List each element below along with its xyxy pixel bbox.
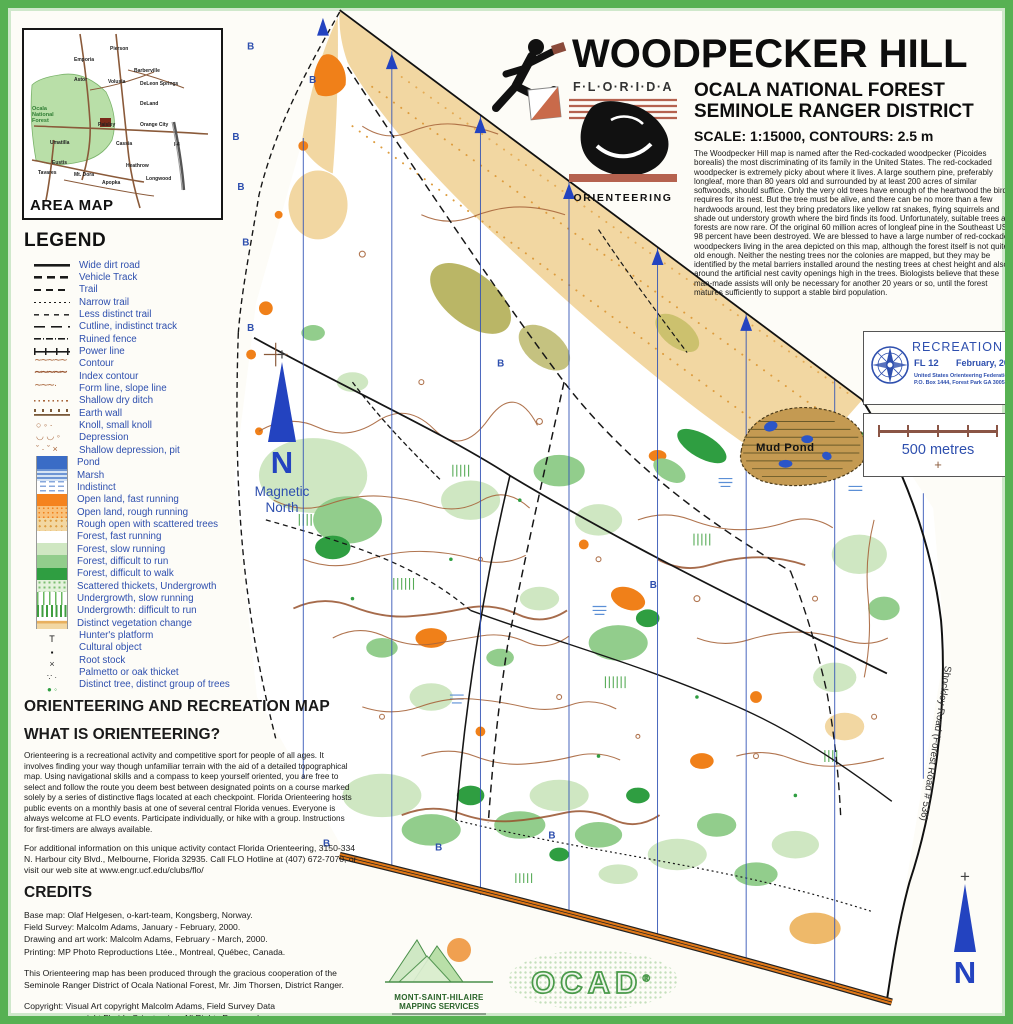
cross-mark-icon: + bbox=[936, 870, 994, 884]
msh-contact-line bbox=[392, 1013, 486, 1015]
registered-mark: ® bbox=[642, 974, 654, 985]
w-forestdiffrun-symbol bbox=[36, 555, 68, 567]
area-map-town-label: Eustis bbox=[52, 160, 67, 166]
what-is-orienteering-body: Orienteering is a recreational activity … bbox=[24, 751, 354, 835]
area-map-town-label: Emporia bbox=[74, 57, 94, 63]
legend-label: Less distinct trail bbox=[79, 309, 151, 320]
w-vegchange-symbol bbox=[36, 617, 68, 629]
cross-mark-icon: + bbox=[242, 348, 322, 362]
compass-rose-icon bbox=[869, 344, 911, 386]
subtitle-forest: OCALA NATIONAL FOREST bbox=[694, 80, 974, 101]
msh-name-line1: MONT-SAINT-HILAIRE bbox=[374, 993, 504, 1002]
info-text-column: ORIENTEERING AND RECREATION MAP WHAT IS … bbox=[24, 698, 364, 1024]
woodpecker-description: The Woodpecker Hill map is named after t… bbox=[694, 149, 1013, 297]
legend-item: Depression bbox=[24, 432, 249, 444]
ocad-wordmark: OCAD® bbox=[531, 965, 655, 1000]
p-root-symbol bbox=[34, 654, 70, 666]
legend-label: Distinct tree, distinct group of trees bbox=[79, 679, 230, 690]
w-forestslow-symbol bbox=[36, 543, 68, 555]
legend-label: Undergrowth: difficult to run bbox=[77, 605, 197, 616]
legend-item: Knoll, small knoll bbox=[24, 419, 249, 431]
area-map-label: AREA MAP bbox=[30, 197, 113, 214]
legend-label: Undergrowth, slow running bbox=[77, 593, 194, 604]
area-map-town-label: I-4 bbox=[174, 142, 180, 148]
florida-logo-text: F·L·O·R·I·D·A bbox=[564, 80, 682, 94]
subtitle-district: SEMINOLE RANGER DISTRICT bbox=[694, 101, 974, 122]
legend-label: Shallow depression, pit bbox=[79, 445, 180, 456]
area-map-town-label: Apopka bbox=[102, 180, 120, 186]
legend-item: Indistinct bbox=[24, 481, 249, 493]
registration-cross-icon: + bbox=[864, 458, 1012, 471]
legend-item: Root stock bbox=[24, 654, 249, 666]
southeast-north-arrow: + N bbox=[936, 870, 994, 988]
credit-printing: Printing: MP Photo Reproductions Ltée., … bbox=[24, 946, 364, 958]
legend-label: Forest, fast running bbox=[77, 531, 161, 542]
florida-logo-orienteering-text: ORIENTEERING bbox=[564, 192, 682, 204]
w-forestdiffwalk-symbol bbox=[36, 568, 68, 580]
scale-bar-box: 500 metres + bbox=[863, 413, 1013, 477]
magnetic-north-arrow: + N Magnetic North bbox=[242, 348, 322, 517]
area-map-town-label: Orange City bbox=[140, 122, 168, 128]
legend-label: Vehicle Track bbox=[79, 272, 137, 283]
legend-label: Forest, slow running bbox=[77, 544, 165, 555]
p-hunter-symbol bbox=[34, 629, 70, 641]
credit-survey: Field Survey: Malcolm Adams, January - F… bbox=[24, 921, 364, 933]
area-map-town-label: Volusia bbox=[108, 79, 125, 85]
legend-label: Pond bbox=[77, 457, 100, 468]
mountains-sun-icon bbox=[379, 930, 499, 988]
ocad-logo: OCAD® bbox=[508, 950, 678, 1010]
legend-label: Shallow dry ditch bbox=[79, 395, 153, 406]
boundary-marker-b: B bbox=[232, 132, 239, 143]
legend-label: Hunter's platform bbox=[79, 630, 153, 641]
magnetic-north-label: Magnetic North bbox=[242, 484, 322, 518]
s-trail-symbol bbox=[34, 284, 70, 296]
map-subtitle: OCALA NATIONAL FOREST SEMINOLE RANGER DI… bbox=[694, 80, 974, 123]
legend-label: Forest, difficult to run bbox=[77, 556, 168, 567]
area-map-inset: PiersonEmporiaBarbervilleDeLeon SpringsA… bbox=[22, 28, 223, 220]
legend-item: Marsh bbox=[24, 469, 249, 481]
legend-label: Cutline, indistinct track bbox=[79, 321, 177, 332]
area-map-town-label: Umatilla bbox=[50, 140, 69, 146]
w-underslow-symbol bbox=[36, 592, 68, 604]
legend-item: Forest, difficult to walk bbox=[24, 568, 249, 580]
legend-label: Form line, slope line bbox=[79, 383, 167, 394]
legend-label: Index contour bbox=[79, 371, 138, 382]
manatee-artwork bbox=[567, 94, 679, 186]
legend-label: Contour bbox=[79, 358, 114, 369]
boundary-marker-b: B bbox=[247, 41, 254, 52]
legend-item: Less distinct trail bbox=[24, 308, 249, 320]
map-title: WOODPECKER HILL bbox=[572, 32, 968, 77]
area-map-town-label: Paisley bbox=[98, 122, 115, 128]
recreation-map-badge: RECREATION MAP FL 12 February, 2000 Unit… bbox=[863, 331, 1013, 405]
scale-bar-label: 500 metres bbox=[864, 442, 1012, 458]
north-letter: N bbox=[242, 447, 322, 478]
legend-panel: LEGEND Wide dirt roadVehicle TrackTrailN… bbox=[24, 230, 249, 691]
legend-item: Ruined fence bbox=[24, 333, 249, 345]
credit-drawing: Drawing and art work: Malcolm Adams, Feb… bbox=[24, 933, 364, 945]
legend-item: Cultural object bbox=[24, 642, 249, 654]
area-map-town-label: Astor bbox=[74, 77, 87, 83]
legend-item: Hunter's platform bbox=[24, 629, 249, 641]
boundary-marker-b: B bbox=[309, 75, 316, 86]
legend-item: Forest, slow running bbox=[24, 543, 249, 555]
legend-item: Rough open with scattered trees bbox=[24, 518, 249, 530]
north-arrow-icon bbox=[260, 362, 304, 444]
legend-item: Palmetto or oak thicket bbox=[24, 666, 249, 678]
legend-item: Cutline, indistinct track bbox=[24, 321, 249, 333]
cooperation-note: This Orienteering map has been produced … bbox=[24, 968, 358, 990]
area-map-town-label: Ocala National Forest bbox=[32, 106, 66, 124]
north-letter: N bbox=[936, 957, 994, 988]
usof-address: United States Orienteering Federation P.… bbox=[914, 373, 1011, 387]
area-map-town-label: Heathrow bbox=[126, 163, 149, 169]
area-map-town-label: Pierson bbox=[110, 46, 128, 52]
legend-label: Trail bbox=[79, 284, 98, 295]
scale-contours-line: SCALE: 1:15000, CONTOURS: 2.5 m bbox=[694, 128, 933, 144]
w-forestfast-symbol bbox=[36, 531, 68, 543]
area-map-towns: PiersonEmporiaBarbervilleDeLeon SpringsA… bbox=[24, 30, 221, 218]
s-vtrack-symbol bbox=[34, 272, 70, 284]
legend-item: Trail bbox=[24, 284, 249, 296]
legend-label: Wide dirt road bbox=[79, 260, 140, 271]
magnetic-label-line1: Magnetic bbox=[242, 484, 322, 501]
w-indistinct-symbol bbox=[36, 481, 68, 493]
legend-label: Distinct vegetation change bbox=[77, 618, 192, 629]
mud-pond-label: Mud Pond bbox=[756, 442, 815, 454]
legend-item: Open land, fast running bbox=[24, 494, 249, 506]
area-map-town-label: Longwood bbox=[146, 176, 171, 182]
s-fence-symbol bbox=[34, 333, 70, 345]
legend-label: Power line bbox=[79, 346, 125, 357]
legend-item: Distinct vegetation change bbox=[24, 617, 249, 629]
legend-item: Undergrowth, slow running bbox=[24, 592, 249, 604]
usof-line1: United States Orienteering Federation bbox=[914, 373, 1011, 380]
s-ditch-symbol bbox=[34, 395, 70, 407]
map-code: FL 12 bbox=[914, 358, 939, 369]
w-openfast-symbol bbox=[36, 494, 68, 506]
copyright-note: Copyright: Visual Art copyright Malcolm … bbox=[24, 1000, 364, 1024]
legend-item: Wide dirt road bbox=[24, 259, 249, 271]
legend-label: Knoll, small knoll bbox=[79, 420, 152, 431]
w-thickets-symbol bbox=[36, 580, 68, 592]
copyright-line2: copyright Florida Orienteering. All Righ… bbox=[24, 1012, 364, 1024]
control-flag-icon bbox=[528, 87, 561, 120]
copyright-line1: Copyright: Visual Art copyright Malcolm … bbox=[24, 1000, 364, 1012]
boundary-marker-b: B bbox=[548, 831, 555, 842]
s-knoll-symbol bbox=[34, 420, 70, 432]
w-pond-symbol bbox=[36, 456, 68, 468]
s-depression-symbol bbox=[34, 432, 70, 444]
orienteering-map-poster: Mud Pond Shockley Road (Forest Road # 53… bbox=[0, 0, 1013, 1024]
legend-item: Form line, slope line bbox=[24, 382, 249, 394]
credit-basemap: Base map: Olaf Helgesen, o-kart-team, Ko… bbox=[24, 909, 364, 921]
contact-info: For additional information on this uniqu… bbox=[24, 843, 358, 877]
legend-item: Shallow depression, pit bbox=[24, 444, 249, 456]
msh-contact-line bbox=[392, 1016, 486, 1018]
boundary-marker-b: B bbox=[435, 843, 442, 854]
north-arrow-icon bbox=[947, 884, 983, 954]
w-roughopen-symbol bbox=[36, 518, 68, 530]
w-marsh-symbol bbox=[36, 469, 68, 481]
legend-label: Palmetto or oak thicket bbox=[79, 667, 179, 678]
w-underdiff-symbol bbox=[36, 605, 68, 617]
p-cultural-symbol bbox=[34, 642, 70, 654]
s-earthwall-symbol bbox=[34, 407, 70, 419]
legend-label: Scattered thickets, Undergrowth bbox=[77, 581, 216, 592]
legend-label: Depression bbox=[79, 432, 129, 443]
combo-title: ORIENTEERING AND RECREATION MAP bbox=[24, 698, 364, 716]
credits-title: CREDITS bbox=[24, 884, 364, 902]
area-map-town-label: Tavares bbox=[38, 170, 57, 176]
legend-item: Narrow trail bbox=[24, 296, 249, 308]
area-map-town-label: Barberville bbox=[134, 68, 160, 74]
boundary-marker-b: B bbox=[497, 358, 504, 369]
legend-item: Forest, fast running bbox=[24, 531, 249, 543]
legend-label: Rough open with scattered trees bbox=[77, 519, 218, 530]
msh-name-line2: MAPPING SERVICES bbox=[374, 1002, 504, 1011]
area-map-town-label: Cassia bbox=[116, 141, 132, 147]
legend-label: Ruined fence bbox=[79, 334, 137, 345]
s-road-symbol bbox=[34, 259, 70, 271]
msh-mapping-logo: MONT-SAINT-HILAIRE MAPPING SERVICES bbox=[374, 930, 504, 1018]
magnetic-label-line2: North bbox=[242, 500, 322, 517]
p-tree-symbol bbox=[34, 679, 70, 691]
area-map-town-label: DeLeon Springs bbox=[140, 81, 178, 87]
legend-item: Forest, difficult to run bbox=[24, 555, 249, 567]
legend-label: Earth wall bbox=[79, 408, 122, 419]
legend-label: Open land, fast running bbox=[77, 494, 179, 505]
p-palmetto-symbol bbox=[34, 667, 70, 679]
legend-label: Cultural object bbox=[79, 642, 142, 653]
legend-item: Pond bbox=[24, 457, 249, 469]
s-form-symbol bbox=[34, 383, 70, 395]
legend-label: Root stock bbox=[79, 655, 125, 666]
florida-orienteering-logo: F·L·O·R·I·D·A ORIENTEERING bbox=[564, 80, 682, 204]
legend-label: Narrow trail bbox=[79, 297, 129, 308]
w-openrough-symbol bbox=[36, 506, 68, 518]
s-cutline-symbol bbox=[34, 321, 70, 333]
legend-item: Scattered thickets, Undergrowth bbox=[24, 580, 249, 592]
legend-title: LEGEND bbox=[24, 230, 249, 252]
scale-bar bbox=[878, 430, 998, 433]
area-map-town-label: Mt. Dora bbox=[74, 172, 94, 178]
legend-item: Shallow dry ditch bbox=[24, 395, 249, 407]
boundary-marker-b: B bbox=[237, 182, 244, 193]
legend-item: Vehicle Track bbox=[24, 271, 249, 283]
s-narrow-symbol bbox=[34, 296, 70, 308]
legend-item: Undergrowth: difficult to run bbox=[24, 605, 249, 617]
area-map-town-label: DeLand bbox=[140, 101, 158, 107]
legend-label: Forest, difficult to walk bbox=[77, 568, 174, 579]
usof-line2: P.O. Box 1444, Forest Park GA 30051 bbox=[914, 380, 1011, 387]
s-less-symbol bbox=[34, 309, 70, 321]
legend-label: Indistinct bbox=[77, 482, 116, 493]
what-is-orienteering-title: WHAT IS ORIENTEERING? bbox=[24, 726, 364, 744]
legend-label: Open land, rough running bbox=[77, 507, 188, 518]
recreation-map-title: RECREATION MAP bbox=[912, 340, 1013, 354]
boundary-marker-b: B bbox=[650, 580, 657, 591]
legend-label: Marsh bbox=[77, 470, 104, 481]
s-shallowdep-symbol bbox=[34, 444, 70, 456]
legend-list: Wide dirt roadVehicle TrackTrailNarrow t… bbox=[24, 259, 249, 691]
legend-item: Index contour bbox=[24, 370, 249, 382]
legend-item: Earth wall bbox=[24, 407, 249, 419]
legend-item: Open land, rough running bbox=[24, 506, 249, 518]
map-date: February, 2000 bbox=[956, 358, 1013, 368]
legend-item: Distinct tree, distinct group of trees bbox=[24, 679, 249, 691]
